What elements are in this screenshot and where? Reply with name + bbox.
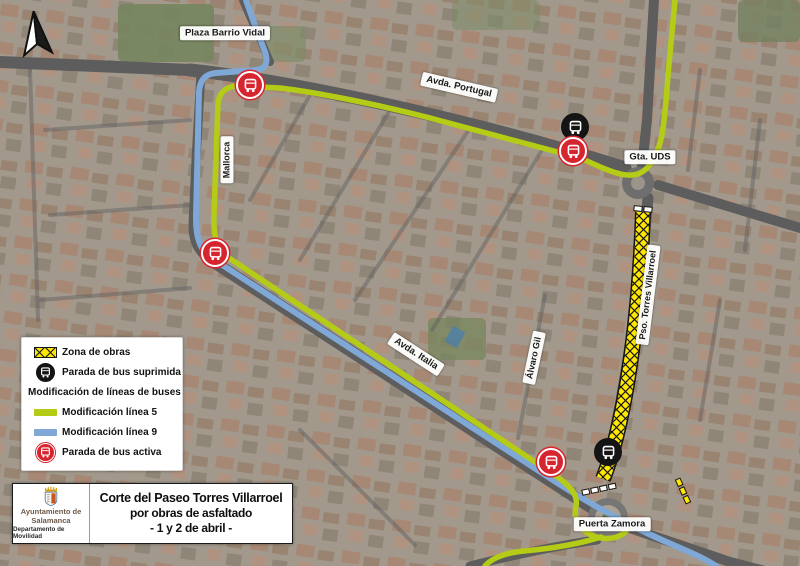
- bus-stop-active-icon: [559, 137, 587, 165]
- legend-label-removed-stop: Parada de bus suprimida: [62, 367, 181, 378]
- bus-stop-active-icon: [236, 71, 264, 99]
- north-arrow-icon: [16, 8, 56, 60]
- works-hatch-icon: [34, 347, 57, 358]
- legend-row-works: Zona de obras: [22, 342, 182, 362]
- legend-header: Modificación de líneas de buses: [22, 382, 182, 402]
- bus-stop-active-icon: [537, 448, 565, 476]
- label-mallorca: Mallorca: [221, 137, 234, 184]
- bus-glyph: [207, 245, 224, 262]
- legend-label-works: Zona de obras: [62, 347, 130, 358]
- legend-row-line5: Modificación línea 5: [22, 402, 182, 422]
- map-title-line1: Corte del Paseo Torres Villarroel: [100, 491, 283, 507]
- legend-label-active-stop: Parada de bus activa: [62, 447, 162, 458]
- bus-glyph: [242, 77, 259, 94]
- legend: Zona de obras Parada de bus suprimida Mo…: [21, 337, 183, 471]
- bus-stop-active-icon: [36, 443, 55, 462]
- bus-stop-removed-icon: [594, 438, 622, 466]
- line5-swatch: [34, 409, 57, 416]
- bus-glyph: [39, 366, 52, 379]
- map-infographic: Plaza Barrio Vidal Avda. Portugal Gta. U…: [0, 0, 800, 566]
- map-title-line3: - 1 y 2 de abril -: [150, 521, 232, 536]
- bus-glyph: [567, 119, 584, 136]
- map-title: Corte del Paseo Torres Villarroel por ob…: [90, 484, 292, 543]
- label-puerta-zamora: Puerta Zamora: [574, 517, 651, 531]
- bus-glyph: [39, 446, 52, 459]
- bus-glyph: [565, 143, 582, 160]
- bus-stop-removed-icon: [36, 363, 55, 382]
- legend-row-line9: Modificación línea 9: [22, 422, 182, 442]
- org-department: Departamento de Movilidad: [13, 526, 89, 541]
- org-name-line1: Ayuntamiento de: [21, 507, 82, 516]
- title-box: Ayuntamiento de Salamanca Departamento d…: [12, 483, 293, 544]
- org-name-line2: Salamanca: [31, 516, 70, 525]
- legend-row-removed-stop: Parada de bus suprimida: [22, 362, 182, 382]
- map-title-line2: por obras de asfaltado: [130, 506, 252, 521]
- label-plaza-barrio-vidal: Plaza Barrio Vidal: [180, 26, 270, 40]
- label-gta-uds: Gta. UDS: [624, 150, 675, 164]
- legend-label-line5: Modificación línea 5: [62, 407, 157, 418]
- line9-swatch: [34, 429, 57, 436]
- bus-glyph: [543, 454, 560, 471]
- satellite-map: [0, 0, 800, 566]
- bus-glyph: [600, 444, 617, 461]
- legend-label-line9: Modificación línea 9: [62, 427, 157, 438]
- legend-row-active-stop: Parada de bus activa: [22, 442, 182, 462]
- bus-stop-active-icon: [201, 239, 229, 267]
- city-council-logo-cell: Ayuntamiento de Salamanca Departamento d…: [13, 484, 90, 543]
- salamanca-coat-of-arms-icon: [38, 486, 64, 507]
